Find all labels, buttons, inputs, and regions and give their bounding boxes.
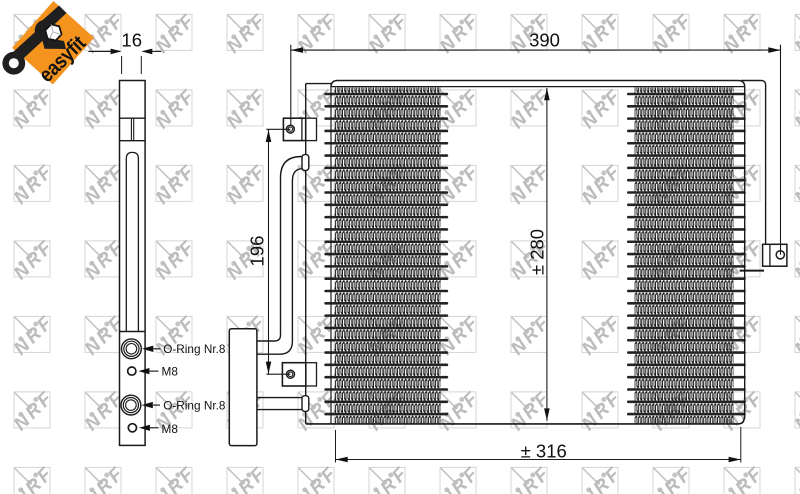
svg-text:± 316: ± 316 — [521, 440, 567, 461]
svg-text:16: 16 — [121, 29, 142, 50]
svg-text:390: 390 — [529, 30, 560, 51]
svg-text:196: 196 — [247, 236, 268, 267]
svg-text:O-Ring Nr.8: O-Ring Nr.8 — [163, 398, 226, 412]
svg-text:O-Ring Nr.8: O-Ring Nr.8 — [163, 342, 226, 356]
svg-text:± 280: ± 280 — [527, 229, 548, 275]
svg-text:M8: M8 — [162, 364, 179, 378]
svg-text:M8: M8 — [162, 422, 179, 436]
